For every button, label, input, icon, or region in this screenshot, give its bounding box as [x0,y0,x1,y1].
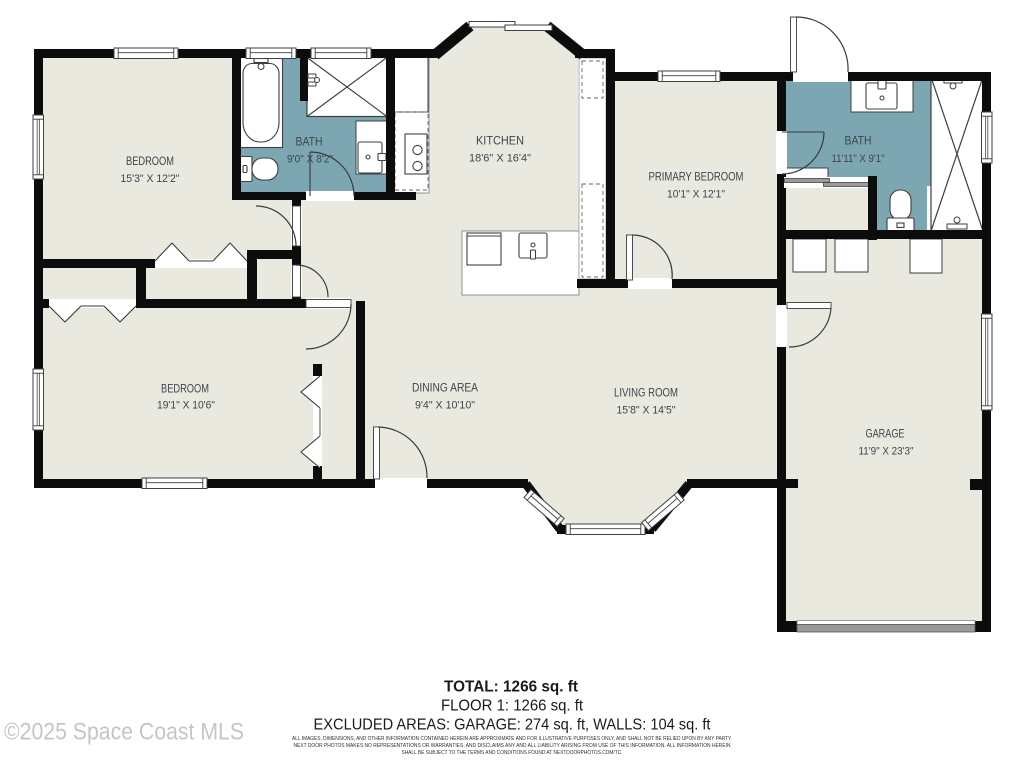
svg-text:19'1" X 10'6": 19'1" X 10'6" [157,400,215,412]
svg-text:9'4" X 10'10": 9'4" X 10'10" [415,400,475,412]
svg-text:10'1" X 12'1": 10'1" X 12'1" [667,189,725,201]
svg-text:9'0" X 8'2": 9'0" X 8'2" [287,154,333,166]
svg-text:11'11" X 9'1": 11'11" X 9'1" [832,153,885,165]
svg-text:EXCLUDED AREAS: GARAGE: 274 sq: EXCLUDED AREAS: GARAGE: 274 sq. ft, WALL… [314,717,712,734]
svg-text:15'8" X 14'5": 15'8" X 14'5" [617,405,676,417]
svg-text:DINING AREA: DINING AREA [412,383,478,395]
svg-text:BEDROOM: BEDROOM [161,384,209,396]
svg-text:SHALL BE SUBJECT TO THE TERMS: SHALL BE SUBJECT TO THE TERMS AND CONDIT… [402,750,623,756]
svg-text:GARAGE: GARAGE [866,429,905,441]
svg-text:©2025 Space Coast MLS: ©2025 Space Coast MLS [4,719,244,746]
svg-text:15'3" X 12'2": 15'3" X 12'2" [121,173,180,185]
svg-text:ALL IMAGES, DIMENSIONS, AND OT: ALL IMAGES, DIMENSIONS, AND OTHER INFORM… [292,736,732,742]
svg-text:BATH: BATH [845,136,872,148]
svg-text:KITCHEN: KITCHEN [476,136,524,148]
svg-text:NEXT DOOR PHOTOS MAKES NO REPR: NEXT DOOR PHOTOS MAKES NO REPRESENTATION… [294,743,731,749]
svg-text:LIVING ROOM: LIVING ROOM [614,388,678,400]
svg-text:18'6" X 16'4": 18'6" X 16'4" [469,153,531,165]
svg-text:PRIMARY BEDROOM: PRIMARY BEDROOM [649,172,744,184]
svg-text:TOTAL: 1266 sq. ft: TOTAL: 1266 sq. ft [444,679,578,696]
svg-text:FLOOR 1: 1266 sq. ft: FLOOR 1: 1266 sq. ft [441,698,584,715]
svg-text:11'9" X 23'3": 11'9" X 23'3" [859,446,914,458]
svg-text:BATH: BATH [296,137,323,149]
svg-text:BEDROOM: BEDROOM [126,156,174,168]
